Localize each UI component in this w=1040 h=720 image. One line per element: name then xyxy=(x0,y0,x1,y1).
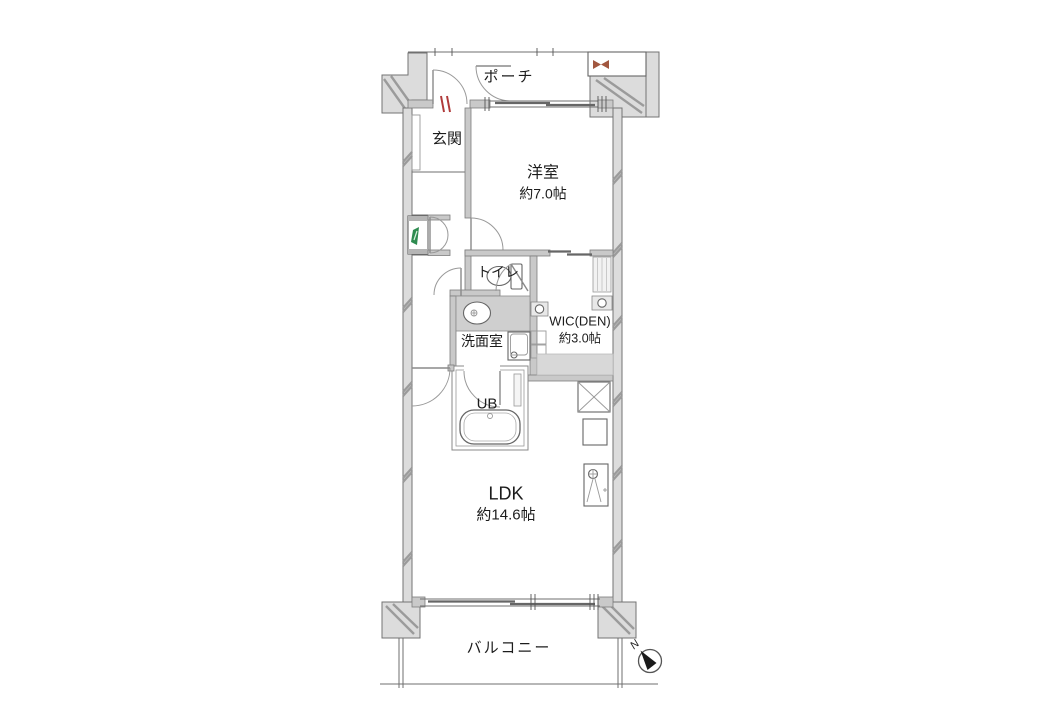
ldk-name: LDK xyxy=(476,483,535,506)
room-label-entrance: 玄関 xyxy=(432,129,462,149)
western-room-door xyxy=(471,218,503,250)
bath-counter xyxy=(514,374,521,406)
wic-sliding-door xyxy=(548,252,592,255)
ldk-balcony-window xyxy=(412,594,613,610)
western-room-size: 約7.0帖 xyxy=(519,184,566,202)
vanity-sink xyxy=(464,302,491,324)
kitchen-counter xyxy=(583,419,607,445)
closet-bifold-doors xyxy=(430,217,448,253)
entry-door-fire-mark xyxy=(441,96,450,112)
western-room-name: 洋室 xyxy=(519,164,566,185)
room-label-ldk: LDK 約14.6帖 xyxy=(476,483,535,526)
room-label-western-room: 洋室 約7.0帖 xyxy=(519,164,566,203)
ldk-size: 約14.6帖 xyxy=(476,506,535,526)
bathtub xyxy=(460,410,520,444)
room-label-wic-den: WIC(DEN) 約3.0帖 xyxy=(549,313,610,346)
compass xyxy=(639,650,662,673)
shoe-cabinet xyxy=(412,115,420,170)
ldk-door xyxy=(412,368,450,406)
refrigerator-space xyxy=(578,382,610,412)
wic-floor-step xyxy=(537,354,613,375)
wic-den-name: WIC(DEN) xyxy=(549,313,610,330)
entry-door xyxy=(433,70,467,104)
washing-machine-space xyxy=(508,332,530,360)
western-room-window xyxy=(485,96,606,112)
room-label-washroom: 洗面室 xyxy=(461,332,503,350)
kitchen-sink xyxy=(584,464,608,506)
room-label-unit-bath: UB xyxy=(477,394,498,414)
wic-den-size: 約3.0帖 xyxy=(549,330,610,346)
room-label-balcony: バルコニー xyxy=(467,638,552,658)
hanger-pipe-bracket-right xyxy=(592,296,612,310)
floorplan-drawing xyxy=(0,0,1040,720)
floorplan-page: ポーチ 玄関 洋室 約7.0帖 トイレ 洗面室 WIC(DEN) 約3.0帖 U… xyxy=(0,0,1040,720)
hanger-pipe-bracket-left xyxy=(531,302,548,316)
room-label-toilet: トイレ xyxy=(477,263,519,281)
room-label-porch: ポーチ xyxy=(483,67,534,87)
